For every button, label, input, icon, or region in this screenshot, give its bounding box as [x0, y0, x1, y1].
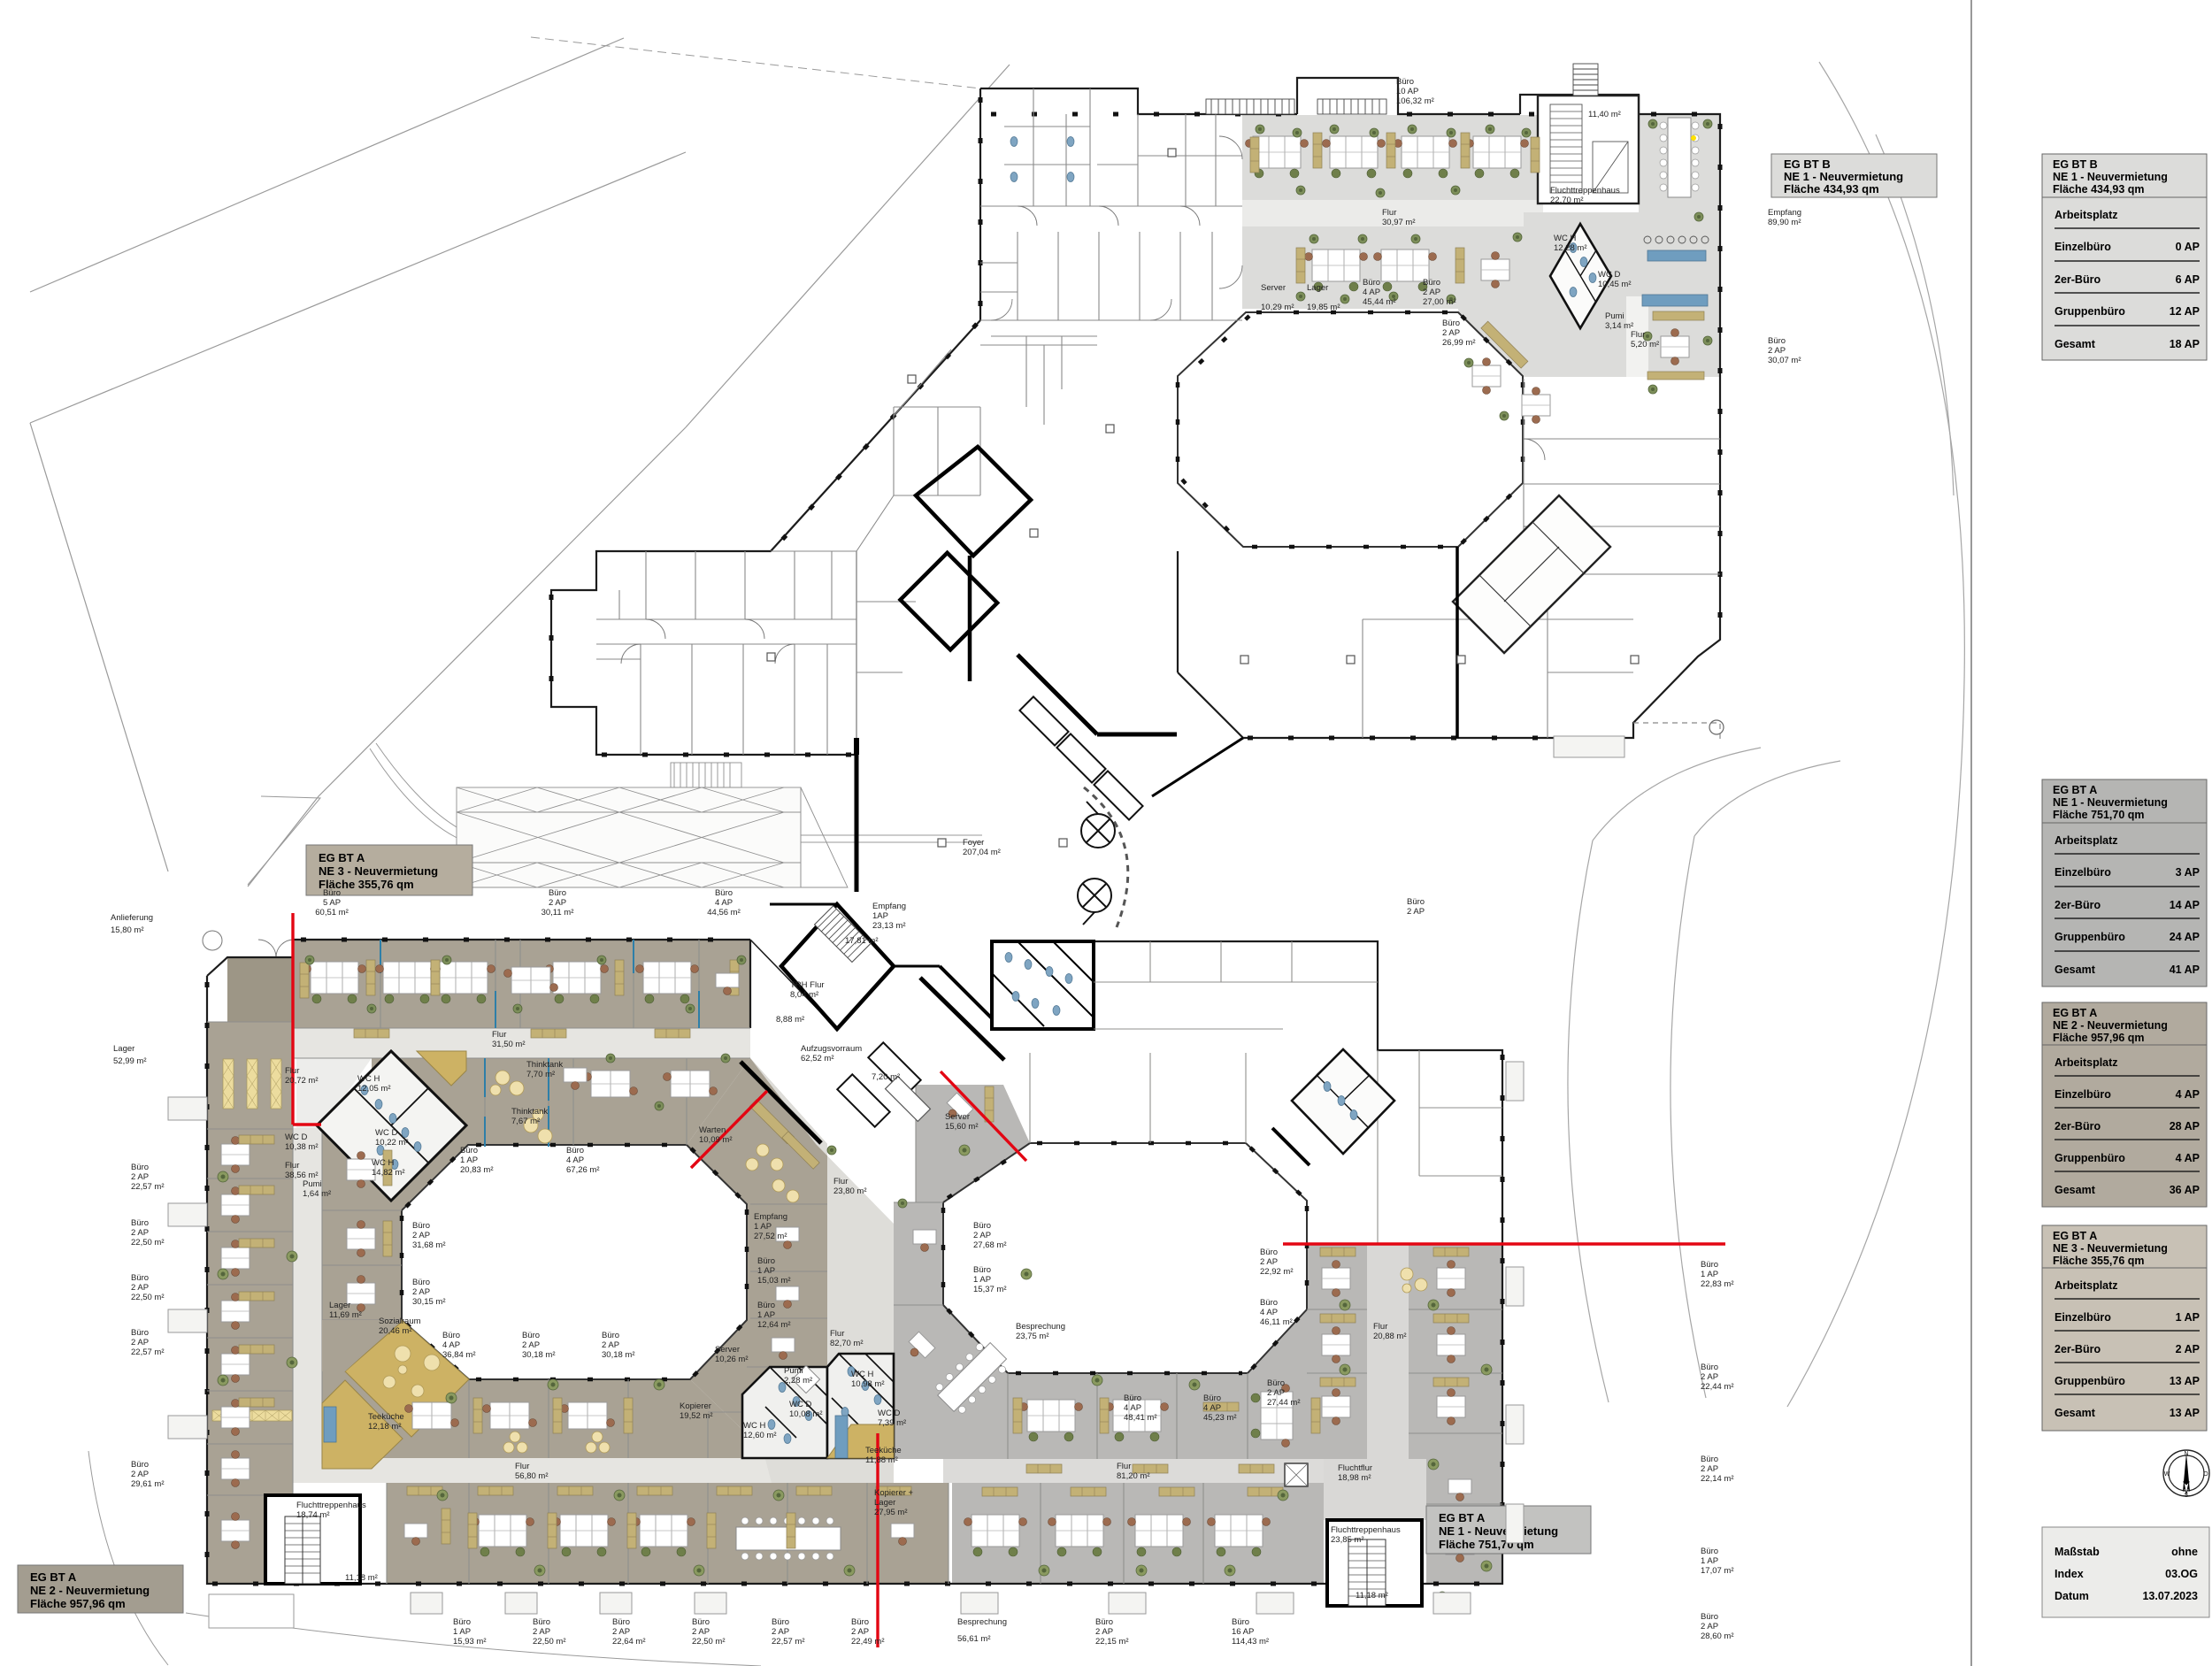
svg-text:1 AP: 1 AP	[2176, 1311, 2200, 1324]
svg-text:7,20 m²: 7,20 m²	[872, 1072, 900, 1082]
svg-text:EG BT B: EG BT B	[2053, 158, 2098, 171]
svg-text:O: O	[2203, 1471, 2208, 1478]
svg-text:NE 1 - Neuvermietung: NE 1 - Neuvermietung	[2053, 796, 2168, 809]
svg-text:Gruppenbüro: Gruppenbüro	[2055, 1152, 2125, 1164]
svg-text:Maßstab: Maßstab	[2055, 1546, 2100, 1558]
svg-text:Fläche 957,96 qm: Fläche 957,96 qm	[2053, 1032, 2145, 1044]
svg-text:Teeküche12,18 m²: Teeküche12,18 m²	[368, 1412, 404, 1432]
svg-text:2er-Büro: 2er-Büro	[2055, 899, 2101, 911]
svg-text:Arbeitsplatz: Arbeitsplatz	[2055, 1279, 2118, 1292]
svg-text:NE 1 - Neuvermietung: NE 1 - Neuvermietung	[2053, 171, 2168, 183]
svg-text:Fläche 434,93 qm: Fläche 434,93 qm	[1784, 182, 1879, 196]
svg-text:Fläche 957,96 qm: Fläche 957,96 qm	[30, 1597, 126, 1610]
svg-text:6 AP: 6 AP	[2176, 273, 2200, 286]
svg-text:EG BT B: EG BT B	[1784, 157, 1831, 171]
svg-text:8,88 m²: 8,88 m²	[776, 1015, 804, 1025]
svg-text:Teeküche11,88 m²: Teeküche11,88 m²	[865, 1446, 902, 1465]
svg-text:2er-Büro: 2er-Büro	[2055, 273, 2101, 286]
svg-text:4 AP: 4 AP	[2176, 1088, 2200, 1101]
svg-text:11,40 m²: 11,40 m²	[1588, 110, 1621, 119]
svg-text:EG BT A: EG BT A	[319, 851, 365, 864]
svg-text:NE 2 - Neuvermietung: NE 2 - Neuvermietung	[30, 1584, 150, 1597]
svg-text:N: N	[2184, 1451, 2188, 1457]
svg-text:Index: Index	[2055, 1568, 2084, 1580]
svg-text:17,81 m²: 17,81 m²	[845, 936, 879, 946]
svg-text:ohne: ohne	[2171, 1546, 2198, 1558]
svg-text:11,18 m²: 11,18 m²	[345, 1573, 378, 1583]
svg-text:13.07.2023: 13.07.2023	[2142, 1590, 2198, 1602]
svg-text:13 AP: 13 AP	[2170, 1407, 2200, 1419]
svg-text:NE 1 - Neuvermietung: NE 1 - Neuvermietung	[1784, 170, 1903, 183]
svg-text:2 AP: 2 AP	[2176, 1343, 2200, 1355]
svg-text:2er-Büro: 2er-Büro	[2055, 1343, 2101, 1355]
svg-text:EG BT A: EG BT A	[2053, 1007, 2097, 1019]
svg-text:Gesamt: Gesamt	[2055, 1184, 2096, 1196]
svg-text:Kopierer19,52 m²: Kopierer19,52 m²	[680, 1401, 713, 1421]
svg-text:Gesamt: Gesamt	[2055, 1407, 2096, 1419]
svg-text:NE 2 - Neuvermietung: NE 2 - Neuvermietung	[2053, 1019, 2168, 1032]
svg-text:Datum: Datum	[2055, 1590, 2089, 1602]
svg-text:Gesamt: Gesamt	[2055, 964, 2096, 976]
svg-text:28 AP: 28 AP	[2170, 1120, 2200, 1132]
svg-text:Gruppenbüro: Gruppenbüro	[2055, 1375, 2125, 1387]
svg-text:Empfang89,90 m²: Empfang89,90 m²	[1768, 208, 1801, 227]
svg-text:Einzelbüro: Einzelbüro	[2055, 1088, 2111, 1101]
svg-text:Einzelbüro: Einzelbüro	[2055, 1311, 2111, 1324]
svg-text:12 AP: 12 AP	[2170, 305, 2200, 318]
svg-text:Arbeitsplatz: Arbeitsplatz	[2055, 209, 2118, 221]
svg-text:24 AP: 24 AP	[2170, 931, 2200, 943]
svg-text:Arbeitsplatz: Arbeitsplatz	[2055, 1056, 2118, 1069]
svg-text:18 AP: 18 AP	[2170, 338, 2200, 350]
svg-text:11,18 m²: 11,18 m²	[1356, 1591, 1388, 1601]
svg-text:14 AP: 14 AP	[2170, 899, 2200, 911]
svg-text:Fläche 751,70 qm: Fläche 751,70 qm	[2053, 809, 2145, 821]
svg-text:Gruppenbüro: Gruppenbüro	[2055, 931, 2125, 943]
svg-text:Fläche 434,93 qm: Fläche 434,93 qm	[2053, 183, 2145, 196]
svg-text:41 AP: 41 AP	[2170, 964, 2200, 976]
svg-text:W: W	[2164, 1471, 2170, 1478]
svg-text:Fluchtflur18,98 m²: Fluchtflur18,98 m²	[1338, 1463, 1372, 1483]
svg-text:Einzelbüro: Einzelbüro	[2055, 241, 2111, 253]
svg-text:NE 3 - Neuvermietung: NE 3 - Neuvermietung	[2053, 1242, 2168, 1255]
svg-text:EG BT A: EG BT A	[1439, 1511, 1486, 1524]
svg-text:36 AP: 36 AP	[2170, 1184, 2200, 1196]
svg-text:EG BT A: EG BT A	[2053, 1230, 2097, 1242]
svg-text:Fläche 355,76 qm: Fläche 355,76 qm	[2053, 1255, 2145, 1267]
svg-text:Arbeitsplatz: Arbeitsplatz	[2055, 834, 2118, 847]
svg-text:0 AP: 0 AP	[2176, 241, 2200, 253]
svg-text:NE 1 - Neuvermietung: NE 1 - Neuvermietung	[1439, 1524, 1558, 1538]
svg-text:Einzelbüro: Einzelbüro	[2055, 866, 2111, 879]
svg-text:Büro2 AP: Büro2 AP	[1407, 897, 1425, 917]
svg-text:EG BT A: EG BT A	[2053, 784, 2097, 796]
svg-text:Gesamt: Gesamt	[2055, 338, 2096, 350]
svg-text:4 AP: 4 AP	[2176, 1152, 2200, 1164]
svg-text:03.OG: 03.OG	[2165, 1568, 2198, 1580]
svg-text:S: S	[2185, 1493, 2189, 1499]
svg-text:Gruppenbüro: Gruppenbüro	[2055, 305, 2125, 318]
svg-text:13 AP: 13 AP	[2170, 1375, 2200, 1387]
svg-text:EG BT A: EG BT A	[30, 1570, 77, 1584]
svg-text:3 AP: 3 AP	[2176, 866, 2200, 879]
svg-text:2er-Büro: 2er-Büro	[2055, 1120, 2101, 1132]
svg-text:NE 3 - Neuvermietung: NE 3 - Neuvermietung	[319, 864, 438, 878]
